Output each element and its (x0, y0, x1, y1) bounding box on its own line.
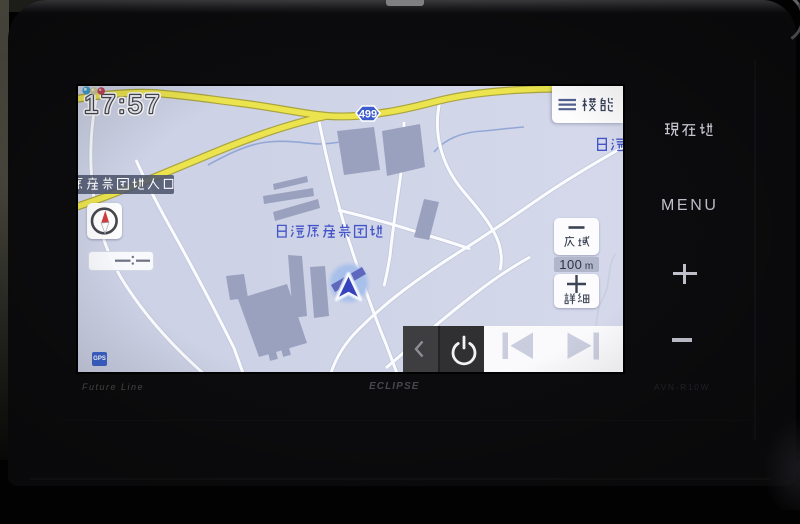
svg-text:499: 499 (359, 109, 377, 121)
